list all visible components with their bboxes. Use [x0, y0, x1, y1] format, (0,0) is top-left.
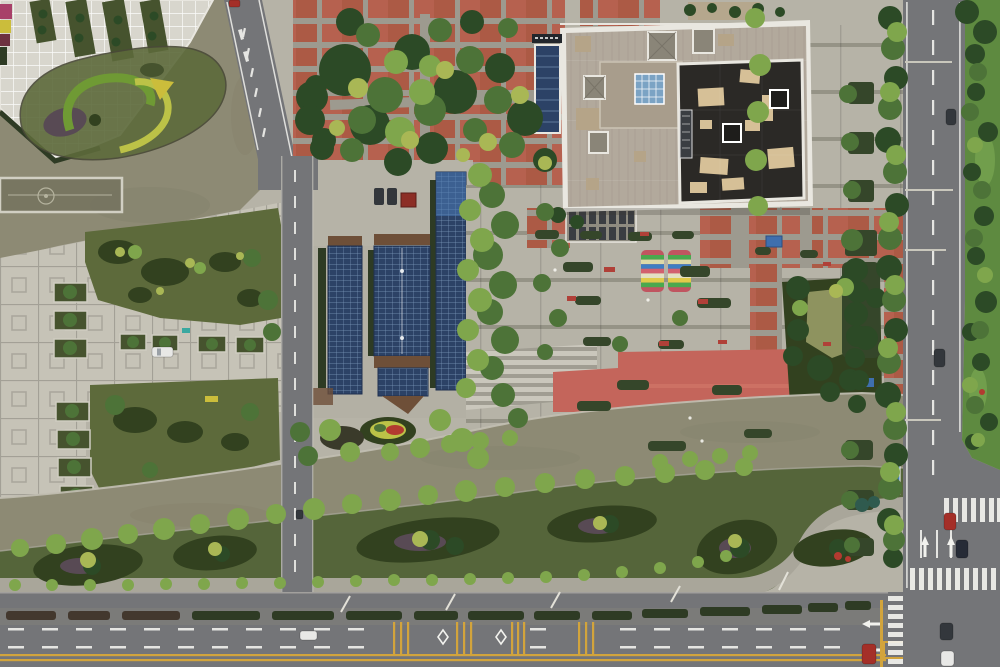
main-building-roof: [532, 20, 813, 215]
bottom-road: [0, 592, 1000, 667]
car-white-plaza: [152, 347, 173, 357]
yellow-bench: [205, 396, 218, 402]
teal-bench: [182, 328, 190, 333]
red-shed: [401, 193, 416, 207]
scooter-middle-road: [296, 510, 303, 519]
car-dark-parked: [934, 349, 945, 367]
car-dark-north: [946, 109, 956, 125]
car-white-south: [941, 651, 954, 666]
car-navy-rightroad: [956, 540, 968, 558]
rainbow-canopy-left: [641, 250, 664, 292]
roof-vents: [680, 110, 692, 158]
fountain-platform: [0, 178, 122, 212]
building-shadow: [562, 208, 810, 215]
ring-flower-bed: [360, 417, 416, 445]
car-red-bridge: [229, 0, 240, 7]
car-dark-south: [940, 623, 953, 640]
solar-array-center: [374, 234, 430, 414]
parking-and-solar: [312, 160, 472, 450]
aerial-photo: [0, 0, 1000, 667]
car-white-road: [300, 631, 317, 640]
blue-tarp: [766, 236, 782, 247]
dark-membrane-roof: [678, 60, 804, 203]
glass-skylight: [635, 74, 664, 104]
car-red-turning: [862, 644, 876, 664]
car-red-rightroad: [944, 513, 956, 530]
